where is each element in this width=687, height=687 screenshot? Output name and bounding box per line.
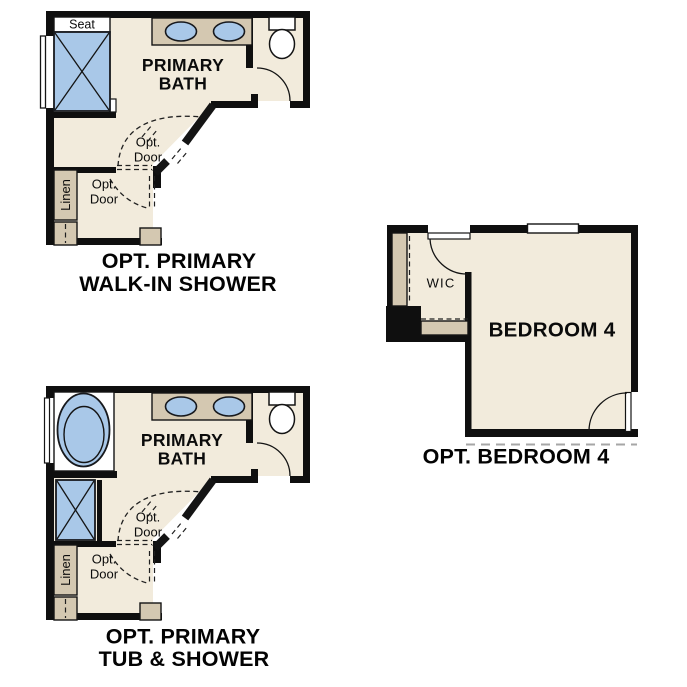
- wall-segment: [465, 429, 638, 437]
- wall-segment: [97, 480, 102, 541]
- door-leaf: [626, 393, 632, 432]
- wall-segment: [251, 94, 258, 102]
- room-label: BEDROOM 4: [489, 319, 616, 342]
- linen-label: Linen: [58, 554, 73, 586]
- wall-cut-stub: [140, 603, 161, 620]
- floor-plans-canvas: Seat PRIMARY BATH Opt. Door Opt. Door Li…: [0, 0, 687, 687]
- wall-segment: [303, 386, 310, 483]
- shower-glass-panel: [41, 36, 46, 108]
- door-leaf: [428, 233, 470, 239]
- opt-door-label: Door: [134, 525, 163, 540]
- wall-segment: [303, 11, 310, 108]
- seat-label: Seat: [69, 18, 95, 32]
- wall-segment: [54, 112, 116, 118]
- wall-segment: [631, 225, 638, 392]
- opt-door-leaf-dash: [178, 527, 188, 539]
- sink-left: [166, 397, 197, 416]
- opt-door-leaf-dash: [178, 152, 188, 164]
- wall-segment: [46, 386, 54, 398]
- opt-door-leaf-dash: [172, 147, 182, 159]
- opt-door-label: Door: [90, 192, 119, 207]
- opt-door-label: Door: [134, 150, 163, 165]
- wall-segment: [290, 101, 310, 108]
- plan-walk-in-shower: Seat PRIMARY BATH Opt. Door Opt. Door Li…: [41, 11, 311, 296]
- opt-door-label: Opt.: [136, 510, 161, 525]
- wall-segment: [46, 471, 117, 478]
- plan-caption: OPT. PRIMARY: [106, 625, 261, 649]
- wall-segment: [211, 476, 258, 483]
- floor-plan-sheet: Seat PRIMARY BATH Opt. Door Opt. Door Li…: [0, 0, 687, 687]
- wall-segment: [251, 469, 258, 477]
- opt-door-label: Opt.: [92, 177, 117, 192]
- sink-right: [214, 397, 245, 416]
- plan-caption: WALK-IN SHOWER: [79, 272, 277, 296]
- toilet-tank: [269, 17, 295, 30]
- wall-cut-stub: [140, 228, 161, 245]
- window: [528, 224, 579, 233]
- wall-segment: [46, 108, 54, 245]
- toilet-bowl: [270, 30, 295, 59]
- bathtub: [58, 394, 110, 467]
- linen-label: Linen: [58, 179, 73, 211]
- room-label: BATH: [158, 449, 207, 469]
- tub-glass-panel: [45, 398, 50, 463]
- closet-shelf: [421, 321, 468, 335]
- opt-door-label: Opt.: [136, 135, 161, 150]
- wall-segment: [46, 11, 54, 36]
- wall-segment: [290, 476, 310, 483]
- plan-tub-and-shower: PRIMARY BATH Opt. Door Opt. Door Linen O…: [45, 386, 311, 671]
- wall-segment: [421, 335, 472, 342]
- opt-door-label: Door: [90, 567, 119, 582]
- room-label: PRIMARY: [141, 430, 223, 450]
- wic-closet-strip: [392, 233, 407, 306]
- plan-bedroom-4: WIC BEDROOM 4 OPT. BEDROOM 4: [386, 224, 638, 469]
- opt-door-label: Opt.: [92, 552, 117, 567]
- room-label: PRIMARY: [142, 55, 224, 75]
- toilet-bowl: [270, 405, 295, 434]
- room-label: BATH: [159, 74, 208, 94]
- wall-segment: [465, 272, 472, 437]
- sink-left: [166, 22, 197, 41]
- wall-segment: [211, 101, 258, 108]
- masonry-block: [386, 306, 421, 342]
- plan-caption: TUB & SHOWER: [99, 647, 270, 671]
- sink-right: [214, 22, 245, 41]
- plan-caption: OPT. BEDROOM 4: [423, 445, 610, 469]
- opt-door-leaf-dash: [172, 522, 182, 534]
- wic-label: WIC: [427, 276, 456, 291]
- toilet-tank: [269, 392, 295, 405]
- plan-caption: OPT. PRIMARY: [102, 249, 257, 273]
